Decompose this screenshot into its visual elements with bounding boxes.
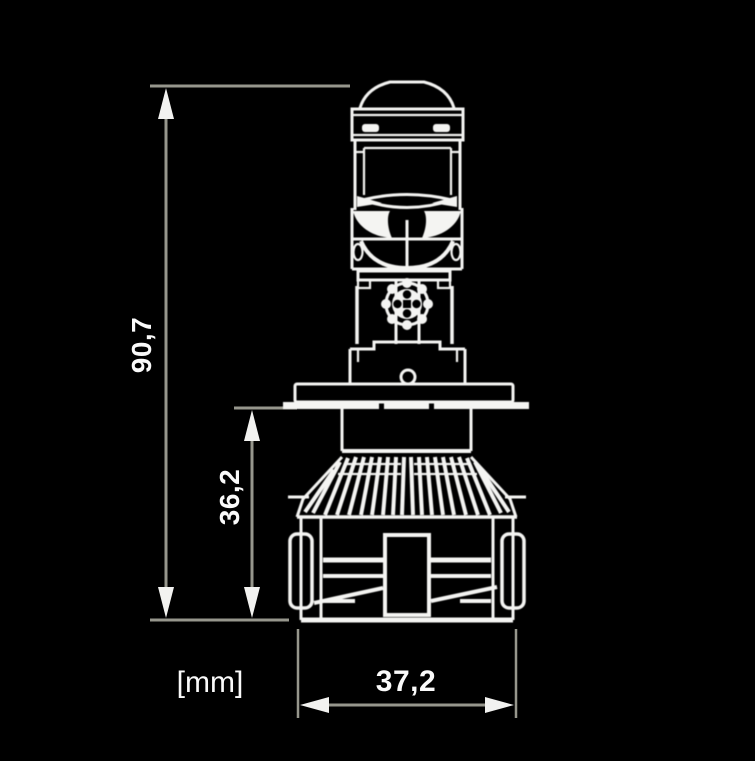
- arrow-up-icon: [244, 410, 260, 441]
- bulb-drawing: [283, 82, 529, 620]
- gasket-segment-left: [283, 402, 379, 409]
- gasket-segment-middle: [384, 402, 429, 409]
- diagram-svg: 90,7 36,2 37,2 [mm]: [0, 0, 755, 761]
- technical-diagram: 90,7 36,2 37,2 [mm]: [0, 0, 755, 761]
- arrow-left-icon: [300, 697, 329, 713]
- reflector-wing-right: [422, 211, 461, 238]
- reflector-screw-left: [354, 244, 363, 260]
- reflector-wing-left: [353, 211, 392, 238]
- lens-dome: [360, 82, 454, 108]
- connector-slot: [385, 535, 429, 615]
- cap-band: [352, 109, 463, 140]
- vent-slot-right: [433, 124, 450, 132]
- dimension-lower-height: 36,2: [214, 408, 297, 618]
- arrow-down-icon: [158, 587, 174, 618]
- base-diagonal-right: [431, 587, 497, 601]
- lower-height-label: 36,2: [214, 469, 245, 526]
- dimension-width: 37,2: [298, 629, 516, 718]
- vent-slot-left: [362, 124, 379, 132]
- arrow-down-icon: [244, 587, 260, 618]
- overall-height-label: 90,7: [126, 317, 157, 374]
- adjustment-gear: [381, 278, 433, 330]
- arrow-up-icon: [158, 88, 174, 119]
- neck: [342, 409, 471, 451]
- projector-lens: [357, 195, 457, 208]
- width-label: 37,2: [376, 665, 436, 698]
- reflector: [352, 208, 462, 269]
- collar: [350, 342, 465, 384]
- dimension-overall-height: 90,7: [126, 86, 350, 620]
- arrow-right-icon: [485, 697, 514, 713]
- mounting-flange: [283, 370, 529, 409]
- gasket-segment-right: [434, 402, 529, 409]
- heatsink-fins: [288, 457, 526, 517]
- reflector-screw-right: [452, 244, 461, 260]
- unit-label: [mm]: [177, 666, 244, 699]
- flange-pin: [401, 370, 415, 384]
- heatsink-base: [290, 517, 524, 620]
